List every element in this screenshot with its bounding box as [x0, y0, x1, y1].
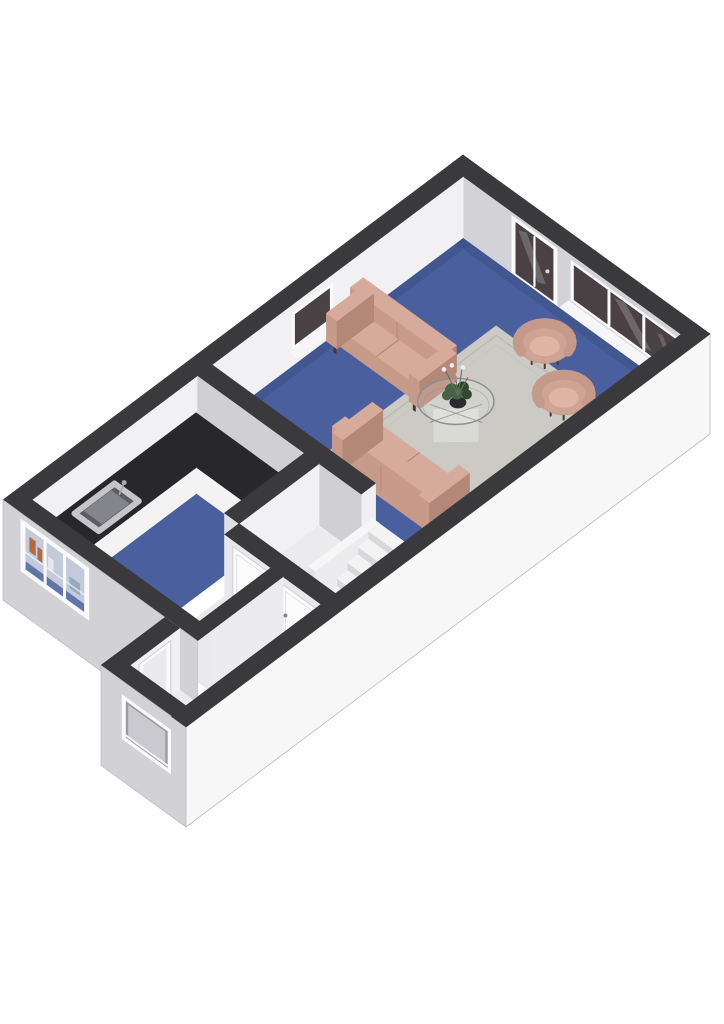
plant-flower	[450, 363, 455, 368]
armchair-left-cushion	[530, 336, 560, 356]
plant-foliage	[462, 389, 472, 399]
plant-flower	[468, 372, 473, 377]
kitchen-window-bottle	[38, 547, 42, 562]
door-handle-icon	[545, 269, 549, 273]
plant-foliage	[442, 390, 452, 400]
floor-plan-page	[0, 0, 724, 1024]
plant-flower	[461, 365, 466, 370]
armchair-right-cushion	[549, 388, 579, 408]
door-handle-icon	[283, 613, 287, 617]
plant-flower	[456, 372, 461, 377]
floor-plan-3d-canvas	[0, 0, 724, 1024]
plant-flower	[442, 367, 447, 372]
